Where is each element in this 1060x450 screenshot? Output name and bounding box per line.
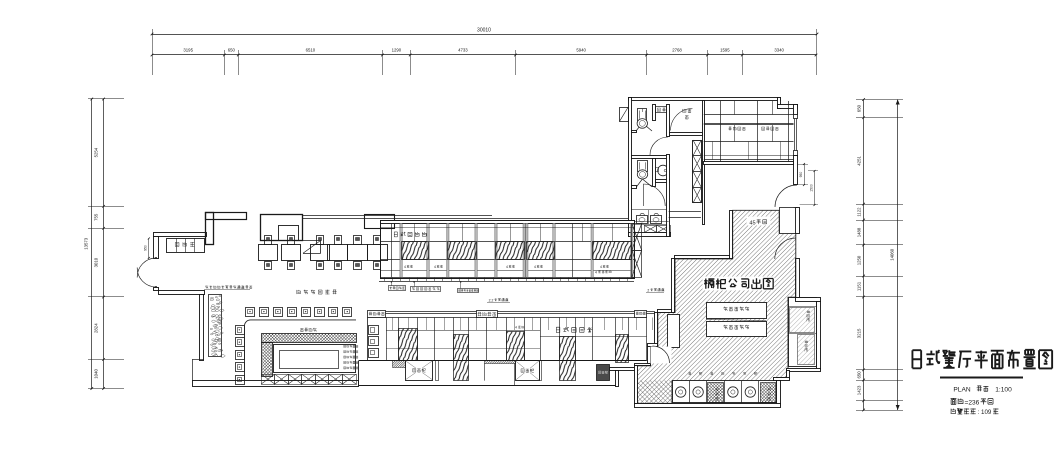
svg-text:1122: 1122 (856, 207, 861, 217)
svg-text:4: 4 (506, 265, 508, 269)
svg-text:1151: 1151 (856, 281, 861, 291)
svg-text:650: 650 (856, 104, 861, 112)
svg-text:2.2: 2.2 (489, 298, 494, 302)
svg-text:1500: 1500 (810, 184, 814, 192)
svg-text:3010: 3010 (94, 257, 99, 267)
svg-text:2768: 2768 (672, 48, 682, 53)
svg-text:755: 755 (94, 213, 99, 221)
svg-text:4: 4 (600, 265, 602, 269)
svg-text:950: 950 (144, 245, 148, 251)
svg-text:13573: 13573 (84, 237, 89, 250)
svg-text:4733: 4733 (458, 48, 468, 53)
svg-text:2824: 2824 (94, 323, 99, 333)
svg-text:4: 4 (434, 265, 436, 269)
svg-text:=236: =236 (965, 399, 980, 406)
svg-text:3340: 3340 (774, 48, 784, 53)
svg-text:1250: 1250 (856, 255, 861, 265)
svg-text:1290: 1290 (392, 48, 402, 53)
svg-text:950: 950 (799, 172, 803, 178)
svg-text:3195: 3195 (183, 48, 193, 53)
svg-text:3215: 3215 (856, 328, 861, 338)
svg-text::: : (978, 409, 980, 416)
svg-text:5940: 5940 (576, 48, 586, 53)
svg-text:30010: 30010 (477, 28, 491, 34)
svg-text:6510: 6510 (306, 48, 316, 53)
svg-text:650: 650 (228, 48, 236, 53)
svg-text:1040: 1040 (94, 369, 99, 379)
svg-text:4: 4 (404, 265, 406, 269)
svg-text:2: 2 (647, 288, 649, 292)
svg-text:4251: 4251 (856, 156, 861, 166)
svg-text:4: 4 (595, 270, 597, 274)
svg-text:1595: 1595 (720, 48, 730, 53)
svg-text:PLAN: PLAN (953, 387, 970, 394)
svg-text:1423: 1423 (856, 385, 861, 395)
svg-text:109: 109 (981, 409, 992, 416)
svg-text:4: 4 (534, 265, 536, 269)
svg-text:1488: 1488 (856, 227, 861, 237)
svg-text:1:100: 1:100 (995, 387, 1012, 394)
svg-text:650: 650 (856, 371, 861, 379)
svg-text:14060: 14060 (890, 248, 895, 261)
svg-text:4: 4 (515, 326, 517, 330)
svg-text:45: 45 (749, 220, 755, 226)
svg-text:5254: 5254 (94, 147, 99, 157)
